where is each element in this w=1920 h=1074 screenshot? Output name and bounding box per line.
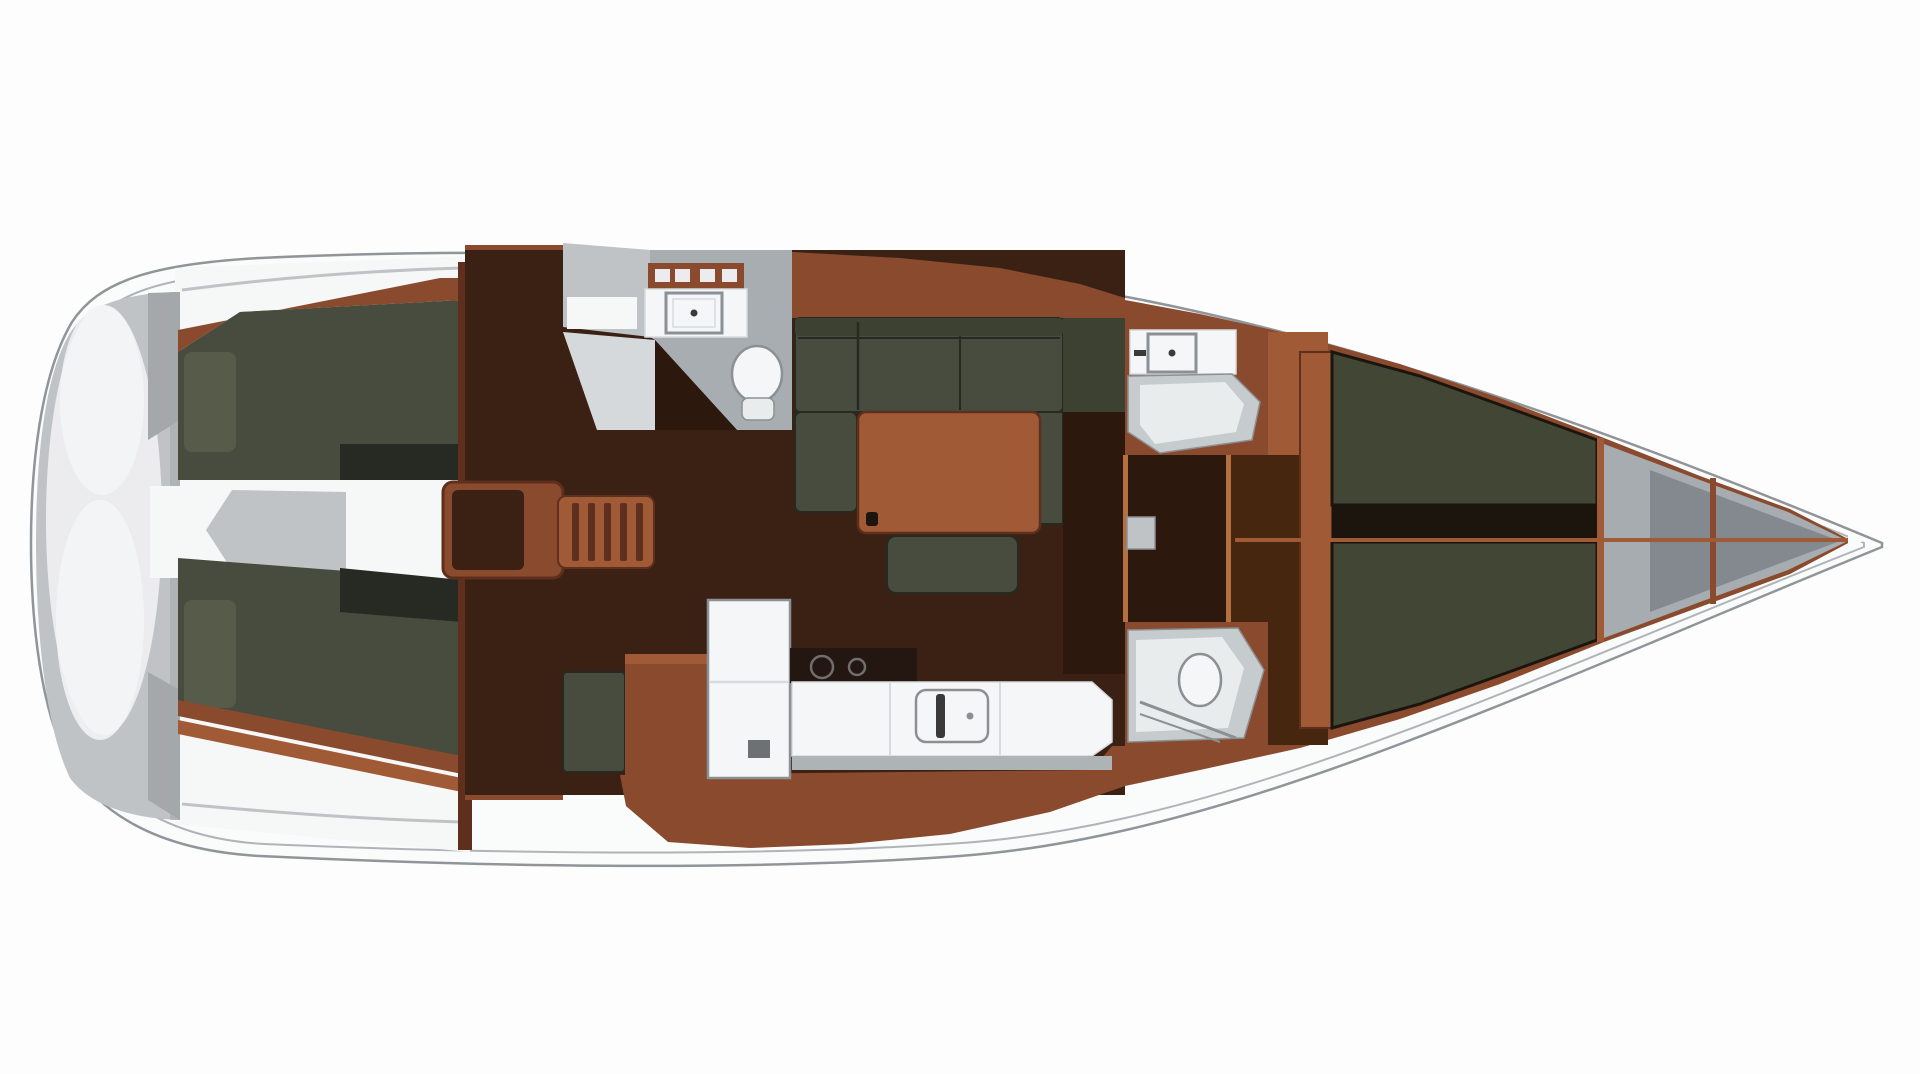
stair-slat bbox=[620, 503, 627, 561]
corridor-step bbox=[1127, 517, 1155, 549]
salon-ottoman bbox=[887, 536, 1018, 593]
forward-heads bbox=[1123, 330, 1328, 745]
fwd-head-faucet bbox=[1134, 350, 1146, 356]
shelf-slot bbox=[722, 269, 737, 282]
stbd-fwd-toilet bbox=[1179, 654, 1221, 706]
corridor-frame-right bbox=[1226, 455, 1231, 622]
galley-seat bbox=[563, 672, 625, 772]
boat-floor-plan bbox=[0, 0, 1920, 1074]
table-leg-mark bbox=[866, 512, 878, 526]
vberth-channel bbox=[1332, 505, 1597, 538]
stair-slat bbox=[588, 503, 595, 561]
page bbox=[0, 0, 1920, 1074]
galley-faucet bbox=[936, 694, 945, 738]
fridge-handle bbox=[748, 740, 770, 758]
galley-left-block bbox=[625, 654, 708, 775]
stairs-landing-inner bbox=[452, 490, 524, 570]
stair-slat bbox=[636, 503, 643, 561]
stair-slat bbox=[604, 503, 611, 561]
port-aft-berth-shadow bbox=[340, 444, 462, 480]
shelf-slot bbox=[700, 269, 715, 282]
settee-right-arm bbox=[1038, 412, 1063, 524]
transom-highlight-3 bbox=[60, 305, 144, 495]
shelf-slot bbox=[655, 269, 670, 282]
stbd-aft-pillow bbox=[184, 600, 236, 708]
fwd-head-drain bbox=[1169, 350, 1176, 357]
hatch-white bbox=[567, 297, 637, 329]
shelf-slot bbox=[675, 269, 690, 282]
centerline-seam bbox=[1235, 538, 1848, 542]
settee-left-arm bbox=[795, 412, 857, 512]
settee-top-backrest bbox=[795, 318, 1063, 336]
salon-table bbox=[858, 412, 1040, 533]
stair-slat bbox=[572, 503, 579, 561]
aft-head-drain bbox=[691, 310, 698, 317]
salon-cabinet bbox=[1063, 412, 1125, 674]
transom-highlight-2 bbox=[56, 500, 144, 740]
vberth-top bbox=[1332, 352, 1597, 505]
aft-head-toilet-tank bbox=[742, 398, 774, 420]
galley-fiddle bbox=[792, 756, 1112, 770]
aft-head-toilet bbox=[732, 346, 782, 402]
port-aft-pillow bbox=[184, 352, 236, 452]
galley-sink bbox=[916, 690, 988, 742]
galley-left-block-top bbox=[625, 654, 708, 664]
galley-drain bbox=[967, 713, 974, 720]
stove-counter bbox=[790, 648, 917, 683]
salon-cabinet-back bbox=[1063, 318, 1125, 412]
